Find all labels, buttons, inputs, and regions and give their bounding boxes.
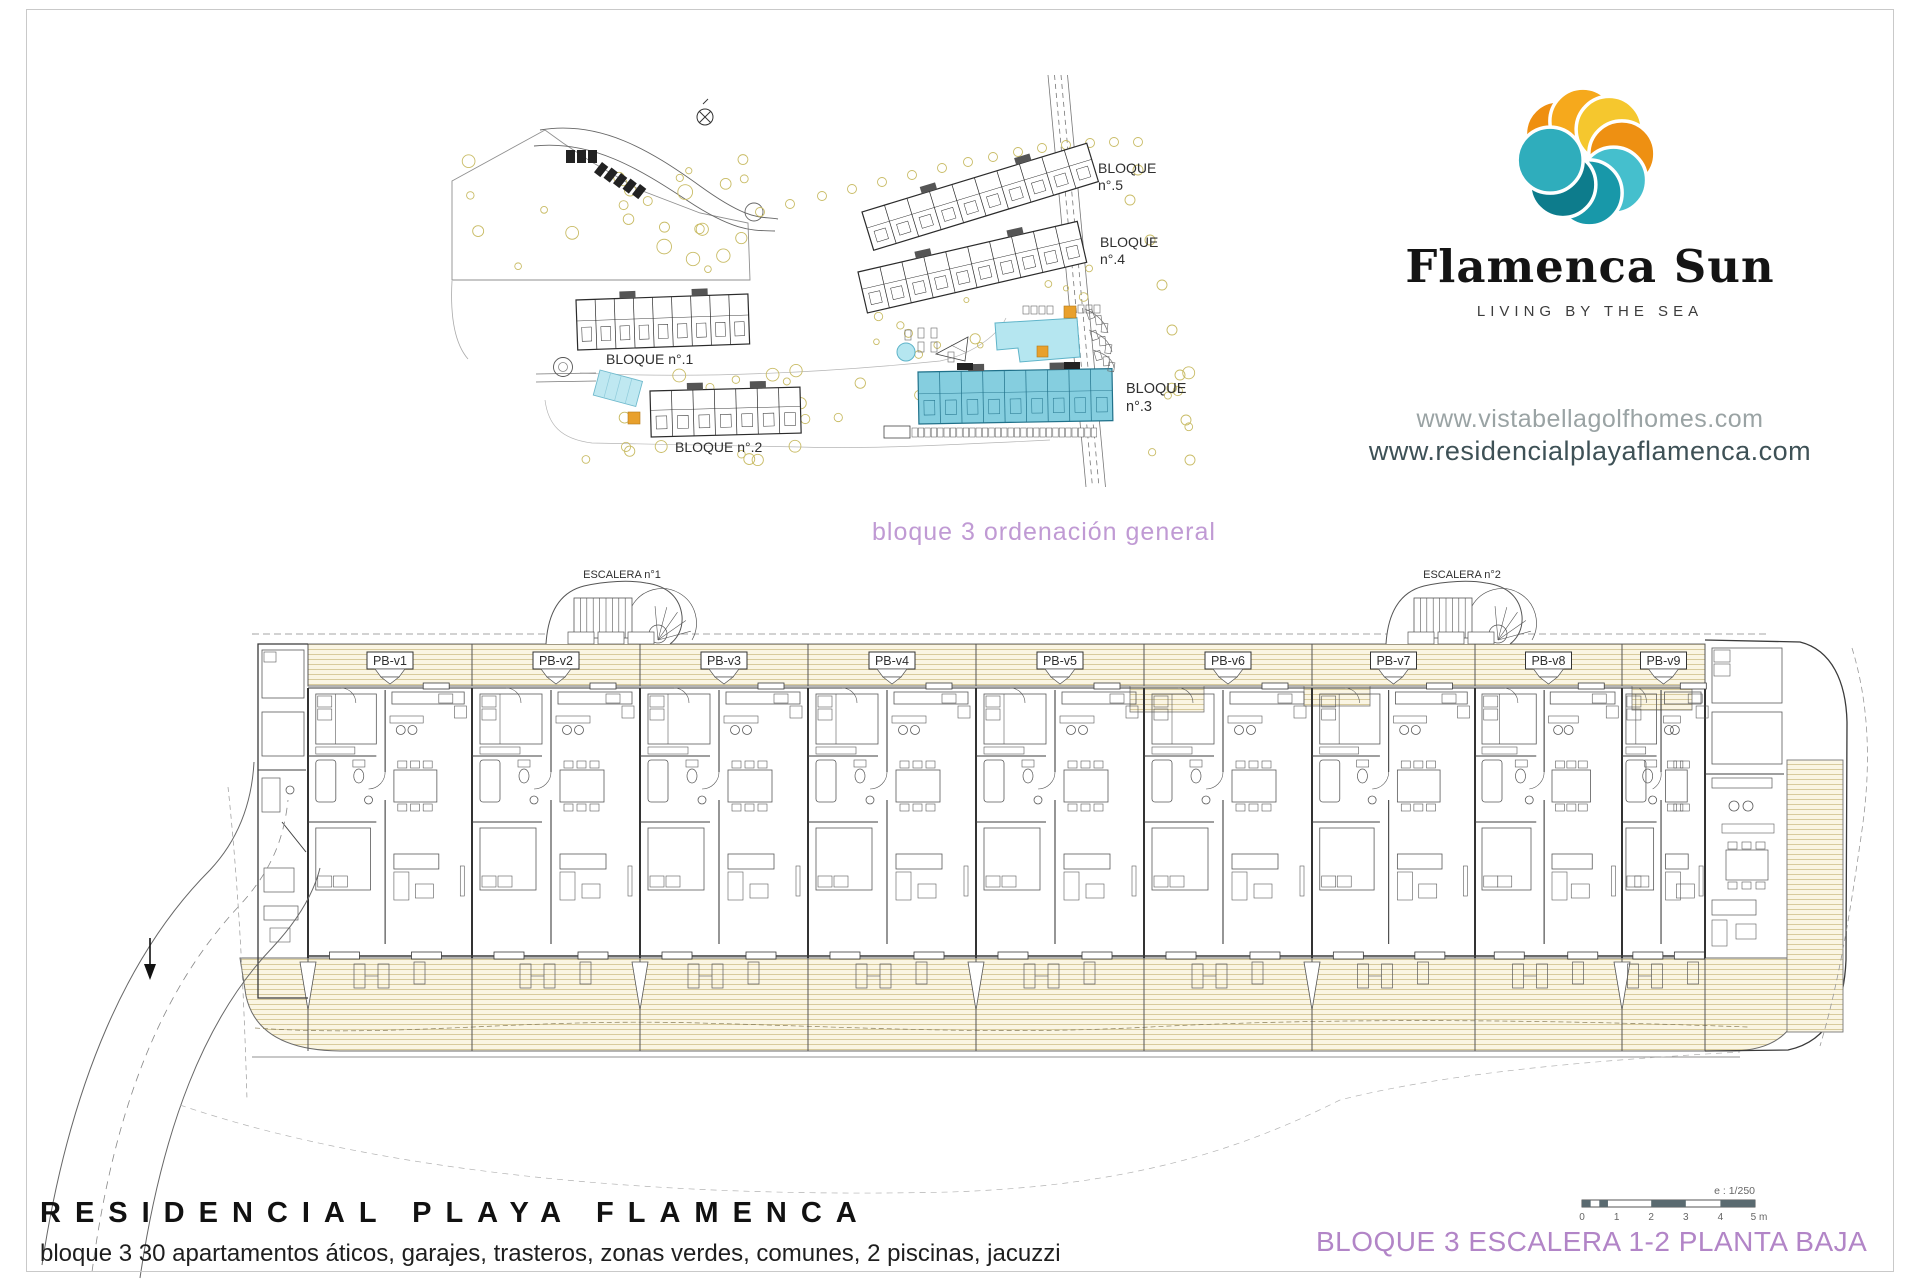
b3-entry-mark <box>1064 362 1080 369</box>
tree <box>582 456 590 464</box>
garage-end <box>884 426 910 438</box>
dining-table <box>1552 770 1591 802</box>
garage-stall <box>950 428 955 437</box>
tree <box>1185 455 1195 465</box>
sail-line <box>951 345 965 352</box>
kitchen-counter <box>726 692 800 704</box>
tree <box>989 153 998 162</box>
chair <box>1680 804 1689 811</box>
unit-label-text: PB-v8 <box>1531 654 1565 668</box>
apartment-unit <box>640 683 802 988</box>
toilet <box>1191 769 1201 783</box>
scale-tick-label: 4 <box>1718 1212 1724 1223</box>
tree <box>720 178 731 189</box>
sofa <box>264 906 298 920</box>
chair <box>758 804 767 811</box>
chair <box>1068 804 1077 811</box>
bloque-2-building-stair-bump <box>750 381 766 388</box>
shade-sail <box>936 337 968 361</box>
kitchen-island <box>556 716 590 723</box>
tree <box>964 158 973 167</box>
window <box>329 952 359 959</box>
kitchen-island <box>390 716 423 723</box>
chair <box>1667 761 1676 768</box>
stair-structure <box>546 581 696 644</box>
fridge <box>1294 706 1306 718</box>
pillow <box>1498 876 1512 887</box>
site-plan: BLOQUE n°.1BLOQUE n°.2BLOQUEn°.3BLOQUEn°… <box>452 75 1195 487</box>
chair <box>1674 804 1683 811</box>
chair <box>1742 842 1751 849</box>
chair <box>1401 761 1410 768</box>
garage-stall <box>1021 428 1026 437</box>
chair <box>1680 761 1689 768</box>
apartment-unit <box>1312 683 1470 988</box>
tree <box>978 342 984 348</box>
apartment-unit <box>1144 683 1306 988</box>
bed <box>1482 694 1536 744</box>
window <box>1680 683 1706 689</box>
chair <box>1414 761 1423 768</box>
bloque-5-label: n°.5 <box>1098 177 1123 193</box>
door-arc <box>506 688 521 703</box>
bloque-3-building-stair-bump <box>1050 362 1066 369</box>
dining-table <box>264 868 294 892</box>
pillow <box>1322 876 1336 887</box>
sofa <box>1397 854 1442 869</box>
sofa <box>1665 854 1688 869</box>
toilet-tank <box>518 760 530 767</box>
chair <box>1262 761 1271 768</box>
tree <box>686 168 692 174</box>
door-arc <box>1010 688 1025 703</box>
parking-stall <box>1090 330 1098 340</box>
window <box>1568 952 1598 959</box>
tree <box>1079 293 1088 302</box>
garage-stall <box>1034 428 1039 437</box>
tree <box>1148 449 1155 456</box>
kitchen-island <box>1664 716 1681 723</box>
website-link-residencial[interactable]: www.residencialplayaflamenca.com <box>1290 436 1890 467</box>
wardrobe <box>1152 747 1192 754</box>
sofa-arm <box>728 872 743 900</box>
tv-unit <box>628 866 632 896</box>
garage-stall <box>995 428 1000 437</box>
dining-table <box>1665 770 1687 802</box>
toilet <box>354 769 364 783</box>
window <box>758 683 784 689</box>
parking-arc <box>1085 309 1108 333</box>
dining-table <box>728 770 772 802</box>
wardrobe <box>480 747 520 754</box>
pillow <box>1484 709 1498 720</box>
tv-unit <box>964 866 968 896</box>
chair <box>745 804 754 811</box>
road-outer-edge <box>42 762 254 1265</box>
sink <box>1235 726 1244 735</box>
tree <box>848 185 857 194</box>
brand-tagline: LIVING BY THE SEA <box>1330 303 1850 320</box>
unit-label-text: PB-v2 <box>539 654 573 668</box>
scale-seg <box>1599 1200 1608 1207</box>
kitchen-island <box>892 716 926 723</box>
window <box>1262 683 1288 689</box>
chair <box>1674 761 1683 768</box>
sofa-arm <box>1064 872 1079 900</box>
sink <box>731 726 740 735</box>
garage-stall <box>944 428 949 437</box>
door-arc <box>1038 772 1055 789</box>
chair <box>564 761 573 768</box>
fridge <box>1458 706 1470 718</box>
sunbed <box>905 330 911 340</box>
door-arc <box>1372 772 1388 789</box>
bathtub <box>1320 760 1340 802</box>
tree <box>659 222 669 232</box>
sunbed <box>918 328 924 338</box>
tree <box>473 226 484 237</box>
door-arc <box>534 772 551 789</box>
tree <box>1038 144 1047 153</box>
toilet <box>1023 769 1033 783</box>
kitchen-counter <box>1712 778 1772 788</box>
pillow <box>1627 876 1641 887</box>
left-wing-outline <box>258 644 308 998</box>
deep-deck-block <box>1304 686 1370 706</box>
tree <box>619 201 628 210</box>
bed <box>1152 828 1208 890</box>
fridge <box>958 706 970 718</box>
sink <box>1554 726 1563 735</box>
door-arc <box>1206 772 1223 789</box>
window <box>1082 952 1112 959</box>
tree <box>874 312 882 320</box>
chair <box>758 761 767 768</box>
bloque-4-label: n°.4 <box>1100 251 1125 267</box>
sofa-arm <box>1232 872 1247 900</box>
sofa-arm <box>1397 872 1412 900</box>
tree <box>970 334 980 344</box>
bed <box>262 712 304 756</box>
pillow <box>986 696 1000 707</box>
coffee-table <box>1419 884 1437 898</box>
parking-stall <box>588 150 597 163</box>
pillow <box>650 696 664 707</box>
tv-unit <box>460 866 464 896</box>
parking-stall <box>1039 306 1045 314</box>
bloque-2-building-stair-bump <box>687 383 703 390</box>
bath-sink <box>698 796 706 804</box>
door-arc <box>341 688 356 703</box>
scale-tick-label: 0 <box>1579 1212 1585 1223</box>
bed <box>648 828 704 890</box>
tree <box>834 413 842 421</box>
garage-stall <box>1059 428 1064 437</box>
parking-stall <box>1086 309 1095 320</box>
bath-sink <box>365 796 373 804</box>
window <box>1250 952 1280 959</box>
road-stub-1 <box>536 373 596 374</box>
bloque-2-building <box>650 380 801 437</box>
tree <box>766 368 779 381</box>
deep-deck-block <box>1130 686 1204 712</box>
kitchen-island <box>1549 716 1579 723</box>
tree <box>1157 280 1167 290</box>
tree <box>643 197 652 206</box>
project-title: RESIDENCIAL PLAYA FLAMENCA <box>40 1197 871 1230</box>
bathtub <box>480 760 500 802</box>
roundabout-inner <box>559 363 568 372</box>
stair-landing <box>598 632 624 644</box>
coffee-table <box>1676 884 1694 898</box>
sofa <box>1552 854 1592 869</box>
garage-stall <box>1046 428 1051 437</box>
stair-landing <box>1438 632 1464 644</box>
tree <box>732 376 739 383</box>
bathtub <box>1626 760 1646 802</box>
door-arc <box>1505 688 1518 703</box>
chair <box>398 761 407 768</box>
garage-stall <box>1085 428 1090 437</box>
bath-sink <box>1525 796 1533 804</box>
garage-stall <box>1040 428 1045 437</box>
bath-sink <box>1368 796 1376 804</box>
sofa-arm <box>1552 872 1567 900</box>
chair <box>423 804 432 811</box>
tree <box>1045 281 1052 288</box>
sofa <box>560 854 606 869</box>
website-link-vistabella[interactable]: www.vistabellagolfhomes.com <box>1290 405 1890 434</box>
tree <box>1014 148 1023 157</box>
sink <box>1411 726 1420 735</box>
stove <box>606 694 620 703</box>
site-parking-top <box>566 150 646 199</box>
bath-sink <box>1649 796 1657 804</box>
pillow <box>1154 876 1168 887</box>
window <box>1166 952 1196 959</box>
tree <box>738 155 748 165</box>
tv-unit <box>1463 866 1467 896</box>
wardrobe <box>316 747 355 754</box>
coffee-table <box>415 884 433 898</box>
window <box>590 683 616 689</box>
parking-stall <box>1094 305 1100 313</box>
tree <box>623 214 634 225</box>
chair <box>1756 882 1765 889</box>
door-arc <box>1529 772 1544 789</box>
pillow <box>1714 650 1730 662</box>
parking-stall <box>1031 306 1037 314</box>
tree <box>818 192 827 201</box>
sofa <box>1064 854 1110 869</box>
window <box>998 952 1028 959</box>
dining-table <box>896 770 940 802</box>
sunbed <box>931 328 937 338</box>
tree <box>801 414 810 423</box>
sink <box>1079 726 1088 735</box>
toilet-tank <box>1357 760 1369 767</box>
garage-stall <box>918 428 923 437</box>
tree <box>740 175 748 183</box>
chair <box>1567 804 1576 811</box>
sink <box>396 726 405 735</box>
left-wing <box>258 644 308 998</box>
sink <box>1670 726 1679 735</box>
window <box>926 683 952 689</box>
scale-tick-label: 2 <box>1648 1212 1654 1223</box>
scale-tick-label: 1 <box>1614 1212 1620 1223</box>
road-right-line <box>1048 75 1086 487</box>
chair <box>1426 761 1435 768</box>
chair <box>1401 804 1410 811</box>
chair <box>1578 761 1587 768</box>
bed <box>480 694 542 744</box>
chair <box>1426 804 1435 811</box>
toilet-tank <box>686 760 698 767</box>
kitchen-counter <box>558 692 632 704</box>
sink <box>1743 801 1753 811</box>
parking-stall <box>1047 306 1053 314</box>
kitchen-counter <box>392 692 464 704</box>
chair <box>577 761 586 768</box>
toilet <box>1357 769 1367 783</box>
apartment-unit <box>308 683 466 988</box>
road-top-edge-1 <box>540 128 778 219</box>
fridge <box>622 706 634 718</box>
pillow <box>1484 696 1498 707</box>
scale-tick-label: 3 <box>1683 1212 1689 1223</box>
chair <box>590 761 599 768</box>
garage-stall <box>989 428 994 437</box>
unit-label-text: PB-v6 <box>1211 654 1245 668</box>
pillow <box>1714 664 1730 676</box>
tree <box>515 263 522 270</box>
pillow <box>1627 709 1641 720</box>
bed <box>984 694 1046 744</box>
garage-stall <box>1053 428 1058 437</box>
stair-landing <box>568 632 594 644</box>
bloque-1-building-outline <box>576 294 750 350</box>
bloque-4-label: BLOQUE <box>1100 234 1158 250</box>
garage-stall <box>976 428 981 437</box>
toilet <box>1516 769 1526 783</box>
chair <box>900 761 909 768</box>
parcel-dashed-bottom <box>180 1052 1740 1193</box>
toilet-tank <box>353 760 365 767</box>
bed <box>1320 828 1374 890</box>
stair-landing <box>1408 632 1434 644</box>
kitchen-island <box>724 716 758 723</box>
garage-stall <box>982 428 987 437</box>
chair <box>1249 804 1258 811</box>
toilet-tank <box>1190 760 1202 767</box>
bed <box>1626 828 1654 890</box>
pillow <box>264 652 276 662</box>
sofa <box>1232 854 1278 869</box>
toilet <box>1643 769 1653 783</box>
garage-stall <box>970 428 975 437</box>
sink <box>563 726 572 735</box>
tree <box>786 200 795 209</box>
north-arrow <box>697 99 713 125</box>
pillow <box>318 696 332 707</box>
bloque-1-label: BLOQUE n°.1 <box>606 351 694 367</box>
bloque-1-building-stair-bump <box>692 288 708 296</box>
chair <box>1567 761 1576 768</box>
coffee-table <box>1254 884 1272 898</box>
tree <box>541 206 548 213</box>
scale-seg <box>1720 1200 1755 1207</box>
garage-strip <box>884 426 1097 438</box>
tree <box>1134 138 1143 147</box>
chair <box>1728 882 1737 889</box>
pillow <box>1322 709 1336 720</box>
window <box>662 952 692 959</box>
sink <box>408 726 417 735</box>
unit-label-text: PB-v5 <box>1043 654 1077 668</box>
toilet-tank <box>1645 760 1657 767</box>
garage-stall <box>912 428 917 437</box>
window <box>494 952 524 959</box>
pillow <box>318 709 332 720</box>
chair <box>1578 804 1587 811</box>
tree <box>655 441 667 453</box>
parking-stall <box>1099 336 1106 346</box>
tv-unit <box>1300 866 1304 896</box>
tree <box>1110 138 1119 147</box>
sofa-arm <box>560 872 575 900</box>
pillow <box>482 696 496 707</box>
pillow <box>834 876 848 887</box>
chair <box>732 804 741 811</box>
kitchen-counter <box>1230 692 1304 704</box>
chair <box>732 761 741 768</box>
toilet <box>687 769 697 783</box>
tree <box>1167 325 1177 335</box>
bottom-terrace <box>240 958 1802 1051</box>
kitchen-counter <box>1395 692 1467 704</box>
tv-unit <box>1132 866 1136 896</box>
garage-stall <box>957 428 962 437</box>
wardrobe <box>1482 747 1517 754</box>
door-arc <box>1653 772 1662 789</box>
north-tick <box>703 99 708 104</box>
bloque-3-label: n°.3 <box>1126 399 1152 415</box>
sink <box>1067 726 1076 735</box>
fridge <box>1696 706 1708 718</box>
tree <box>855 378 865 388</box>
toilet <box>855 769 865 783</box>
sink <box>1729 801 1739 811</box>
bloque-3-building-outline <box>918 369 1113 424</box>
chair <box>564 804 573 811</box>
dining-table <box>1064 770 1108 802</box>
kitchen-island <box>1722 824 1774 833</box>
bed <box>262 650 304 698</box>
window <box>423 683 449 689</box>
bed <box>648 694 710 744</box>
parcel-boundary-upper <box>452 130 750 280</box>
stove <box>1592 694 1606 703</box>
diag-wall <box>282 822 306 852</box>
bath-sink <box>1034 796 1042 804</box>
kitchen-counter <box>262 778 280 812</box>
door-arc <box>842 688 857 703</box>
tree <box>678 185 693 200</box>
sofa <box>1712 900 1756 915</box>
garage-stall <box>1008 428 1013 437</box>
site-circle-feature <box>745 203 763 221</box>
